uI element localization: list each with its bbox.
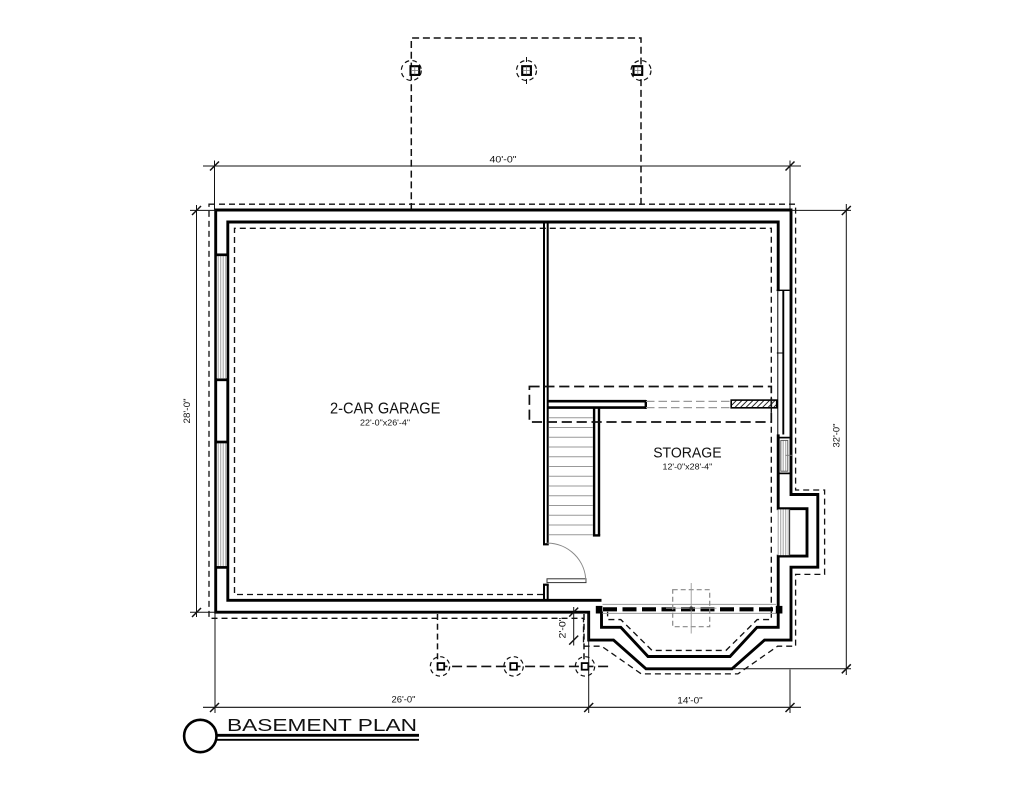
svg-text:32'-0": 32'-0" [832,424,842,448]
svg-text:12'-0"x28'-4": 12'-0"x28'-4" [663,461,713,471]
svg-text:BASEMENT PLAN: BASEMENT PLAN [227,715,417,735]
svg-text:2'-0": 2'-0" [558,618,568,639]
svg-text:40'-0": 40'-0" [490,154,517,164]
svg-text:28'-0": 28'-0" [182,399,193,424]
svg-text:22'-0"x26'-4": 22'-0"x26'-4" [360,417,410,427]
svg-text:14'-0": 14'-0" [677,696,703,706]
svg-text:STORAGE: STORAGE [653,445,721,461]
svg-text:2-CAR GARAGE: 2-CAR GARAGE [330,401,441,418]
svg-text:26'-0": 26'-0" [392,695,416,705]
